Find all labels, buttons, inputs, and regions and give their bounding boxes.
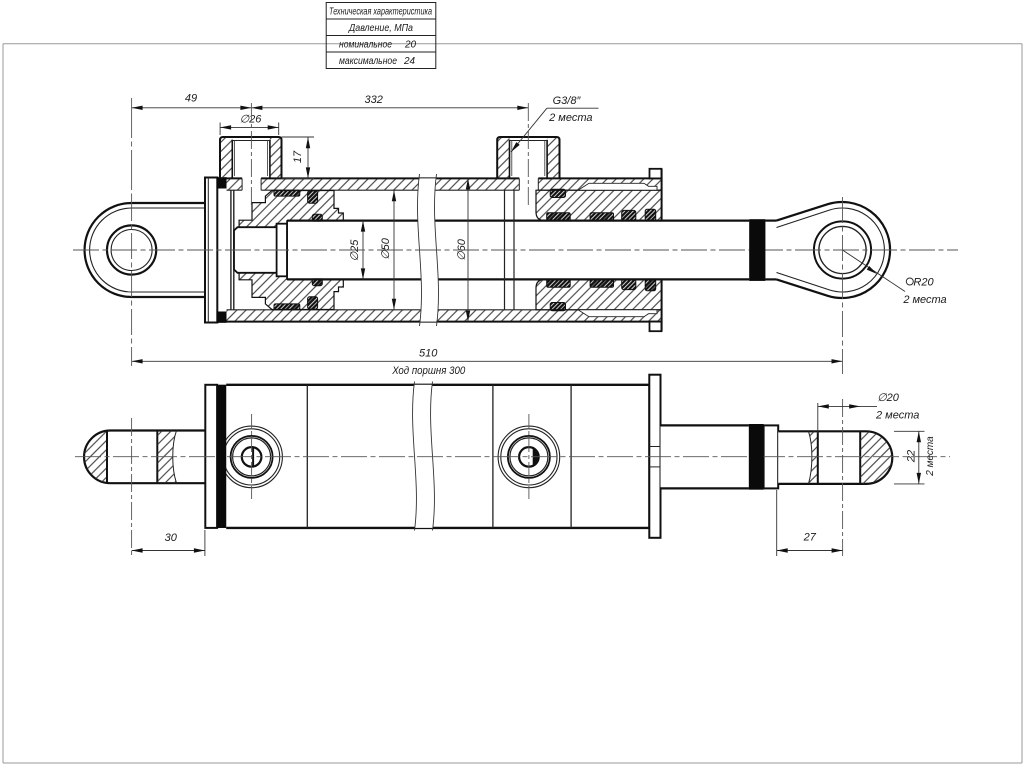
svg-text:17: 17 <box>292 150 304 163</box>
svg-text:2 места: 2 места <box>902 294 946 306</box>
svg-text:2 места: 2 места <box>925 436 936 477</box>
svg-text:∅26: ∅26 <box>240 114 263 126</box>
svg-text:Давление, МПа: Давление, МПа <box>348 23 413 34</box>
svg-text:27: 27 <box>803 532 817 544</box>
svg-text:332: 332 <box>365 94 383 106</box>
svg-text:24: 24 <box>403 56 416 67</box>
svg-text:R20: R20 <box>913 277 934 289</box>
svg-text:22: 22 <box>906 450 918 463</box>
svg-text:30: 30 <box>165 532 178 544</box>
svg-text:G3/8″: G3/8″ <box>553 95 582 107</box>
svg-text:максимальное: максимальное <box>339 56 397 67</box>
svg-text:2 места: 2 места <box>875 409 919 421</box>
svg-text:510: 510 <box>419 347 438 359</box>
svg-text:номинальное: номинальное <box>339 40 392 51</box>
svg-text:2 места: 2 места <box>548 112 592 124</box>
svg-text:∅50: ∅50 <box>380 237 392 260</box>
svg-text:Ход поршня 300: Ход поршня 300 <box>391 365 466 377</box>
svg-text:49: 49 <box>185 93 197 105</box>
svg-text:∅20: ∅20 <box>877 392 900 404</box>
svg-text:20: 20 <box>404 40 417 51</box>
svg-text:Техническая характеристика: Техническая характеристика <box>329 7 432 18</box>
